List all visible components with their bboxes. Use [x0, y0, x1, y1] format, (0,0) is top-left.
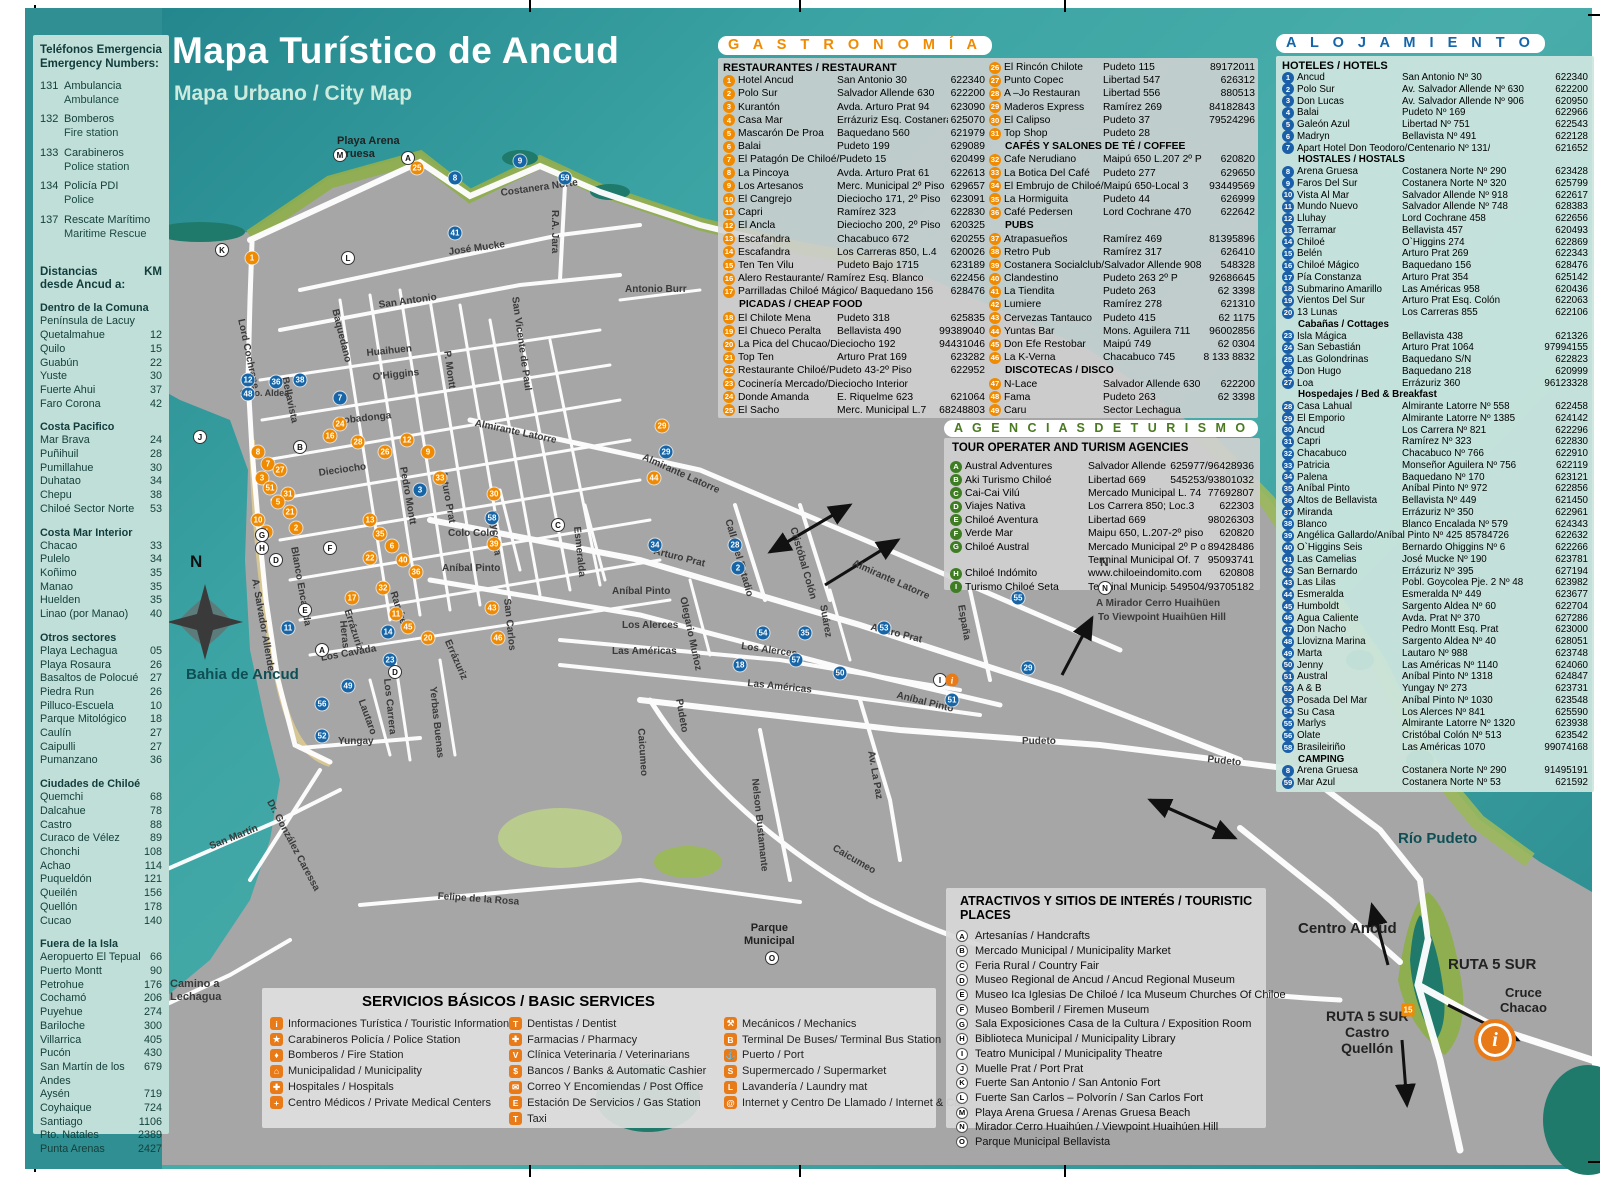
entry-name: San Sebastián	[1297, 342, 1399, 353]
attraction-label: Fuerte San Antonio / San Antonio Fort	[975, 1077, 1160, 1089]
distance-place: Koñimo	[40, 567, 77, 581]
marker-badge: 31	[989, 128, 1001, 140]
entry-address: Almirante Latorre Nº 1320	[1402, 718, 1552, 729]
marker-badge: 51	[1282, 671, 1294, 683]
directory-row: 42LumiereRamírez 278621310	[989, 298, 1255, 311]
distance-place: Pto. Natales	[40, 1129, 99, 1143]
distance-km: 12	[146, 329, 162, 343]
distance-place: Pulelo	[40, 553, 70, 567]
entry-phone: 628383	[1555, 201, 1588, 212]
distance-place: Castro	[40, 819, 72, 833]
distance-place: Villarrica	[40, 1034, 81, 1048]
distance-km: 36	[146, 754, 162, 768]
marker-badge: 24	[1282, 342, 1294, 354]
marker-badge: 23	[1282, 330, 1294, 342]
emergency-number: 134	[40, 180, 64, 208]
attraction-row: KFuerte San Antonio / San Antonio Fort	[956, 1076, 1266, 1091]
directory-row: 11CapriRamírez 323622830	[723, 206, 985, 219]
distance-group: Dentro de la ComunaPenínsula de LacuyQue…	[40, 301, 162, 411]
entry-name: El Cangrejo	[738, 194, 834, 205]
directory-row: 46La K-VernaChacabuco 7458 133 8832	[989, 351, 1255, 364]
marker-badge: 20	[723, 339, 735, 351]
entry-address: Pudeto Bajo 1715	[837, 260, 948, 271]
entry-address: Sector Lechagua	[1103, 405, 1252, 416]
distance-km: 22	[146, 357, 162, 371]
marker-badge: 27	[989, 75, 1001, 87]
entry-address: Pudeto 263	[1103, 286, 1215, 297]
directory-row: 14ChiloéO`Higgins 274622869	[1282, 236, 1588, 248]
entry-name: Vientos Del Sur	[1297, 295, 1399, 306]
entry-name: Clandestino	[1004, 273, 1100, 284]
distance-km: 33	[146, 540, 162, 554]
entry-address: Pudeto 44	[1103, 194, 1218, 205]
entry-phone: 627286	[1555, 613, 1588, 624]
marker-badge: A	[950, 461, 962, 473]
map-label: RUTA 5 SUR Castro Quellón	[1326, 1008, 1408, 1056]
map-marker-wh: N	[1098, 581, 1112, 595]
distance-row: Pulelo34	[40, 553, 162, 567]
map-marker-bl: 34	[649, 539, 662, 552]
entry-name: Humboldt	[1297, 601, 1399, 612]
entry-address: Costanera Norte Nº 290	[1402, 166, 1552, 177]
page-subtitle: Mapa Urbano / City Map	[174, 82, 412, 106]
map-marker-or: 24	[334, 418, 347, 431]
service-label: Municipalidad / Municipality	[288, 1065, 422, 1077]
map-marker-bl: 3	[414, 484, 427, 497]
entry-address: Bernardo Ohiggins Nº 6	[1402, 542, 1552, 553]
map-marker-bl: 36	[270, 376, 283, 389]
directory-row: BAki Turismo ChiloéLibertad 669545253/93…	[950, 473, 1254, 486]
map-marker-wh: A	[401, 151, 415, 165]
entry-name: Agua Caliente	[1297, 613, 1399, 624]
directory-row: 56OlateCristóbal Colón Nº 513623542	[1282, 730, 1588, 742]
distance-place: Puyehue	[40, 1006, 83, 1020]
distance-km: 68	[146, 791, 162, 805]
port-icon: ⚓	[724, 1049, 737, 1062]
attraction-letter-badge: F	[956, 1004, 968, 1016]
entry-address: Avda. Prat Nº 370	[1402, 613, 1552, 624]
distance-km: 10	[146, 700, 162, 714]
emergency-label: AmbulanciaAmbulance	[64, 80, 162, 108]
emergency-row: 134Policía PDIPolice	[40, 180, 162, 208]
distance-km: 178	[140, 901, 162, 915]
distance-row: Playa Rosaura26	[40, 659, 162, 673]
entry-phone: 621326	[1555, 331, 1588, 342]
map-marker-or: 30	[488, 488, 501, 501]
service-row: +Centro Médicos / Private Medical Center…	[270, 1095, 509, 1111]
entry-name: Aníbal Pinto	[1297, 483, 1399, 494]
marker-badge: 50	[1282, 659, 1294, 671]
entry-name: Los Artesanos	[738, 181, 834, 192]
emergency-number: 137	[40, 214, 64, 242]
entry-address: Los Alerces Nº 841	[1402, 707, 1552, 718]
entry-address: Errázuriz Esq. Costanera	[837, 115, 948, 126]
mechanic-icon: ⚒	[724, 1017, 737, 1030]
entry-phone: 622458	[1555, 401, 1588, 412]
distance-row: Chacao33	[40, 540, 162, 554]
entry-name: Top Shop	[1004, 128, 1100, 139]
entry-phone: 62 3398	[1218, 286, 1255, 297]
directory-row: 36Café PedersenLord Cochrane 470622642	[989, 206, 1255, 219]
directory-row: 2Polo SurAv. Salvador Allende Nº 6306222…	[1282, 84, 1588, 96]
entry-address: Bellavista 457	[1402, 225, 1552, 236]
attraction-letter-badge: M	[956, 1107, 968, 1119]
marker-badge: 58	[1282, 741, 1294, 753]
service-label: Farmacias / Pharmacy	[527, 1034, 637, 1046]
distance-row: Puyehue274	[40, 1006, 162, 1020]
map-marker-or: 45	[402, 621, 415, 634]
directory-row: 54Su CasaLos Alerces Nº 841625590	[1282, 706, 1588, 718]
distance-row: Península de Lacuy	[40, 315, 162, 329]
distance-place: Mar Brava	[40, 434, 90, 448]
entry-phone: 77692807	[1208, 488, 1254, 499]
emergency-label: Policía PDIPolice	[64, 180, 162, 208]
entry-phone: 623548	[1555, 695, 1588, 706]
directory-row: 20La Pica del Chucao/Dieciocho 192944310…	[723, 338, 985, 351]
entry-address: Costanera Norte Nº 53	[1402, 777, 1552, 788]
entry-phone: 625070	[951, 115, 985, 126]
map-marker-bl: 54	[757, 627, 770, 640]
map-label: RUTA 5 SUR	[1448, 956, 1536, 973]
entry-address: O`Higgins 274	[1402, 237, 1552, 248]
distance-row: Mar Brava24	[40, 434, 162, 448]
marker-badge: 20	[1282, 307, 1294, 319]
entry-name: Belén	[1297, 248, 1399, 259]
entry-address: Las Américas 1070	[1402, 742, 1541, 753]
emergency-title-en: Emergency Numbers:	[40, 57, 162, 71]
entry-name: Escafandra	[738, 234, 834, 245]
entry-phone: 99389040	[939, 326, 985, 337]
distance-row: Castro88	[40, 819, 162, 833]
entry-address: Pudeto Nº 169	[1402, 107, 1552, 118]
entry-name: O`Higgins Seis	[1297, 542, 1399, 553]
map-label: Las Américas	[612, 646, 677, 658]
marker-badge: 12	[723, 220, 735, 232]
map-marker-or: 35	[374, 528, 387, 541]
distance-place: Pumillahue	[40, 462, 93, 476]
emergency-numbers-panel: Teléfonos Emergencia Emergency Numbers: …	[33, 35, 169, 261]
map-marker-or: 51	[264, 482, 277, 495]
map-label: Los Alerces	[622, 620, 678, 632]
entry-address: Bellavista 438	[1402, 331, 1552, 342]
attraction-label: Fuerte San Carlos – Polvorín / San Carlo…	[975, 1092, 1203, 1104]
distance-km: 35	[146, 581, 162, 595]
distance-group-name: Ciudades de Chiloé	[40, 777, 162, 791]
directory-row: 41La TienditaPudeto 26362 3398	[989, 285, 1255, 298]
marker-badge: 10	[1282, 189, 1294, 201]
map-marker-bl: 56	[316, 698, 329, 711]
distance-row: Duhatao34	[40, 475, 162, 489]
distance-row: Manao35	[40, 581, 162, 595]
entry-address: Arturo Prat 269	[1402, 248, 1552, 259]
distance-km: 35	[146, 594, 162, 608]
entry-address: Salvador Allende 904	[1088, 461, 1167, 472]
map-marker-or: 21	[284, 506, 297, 519]
directory-row: 9Faros Del SurCostanera Norte Nº 3206257…	[1282, 178, 1588, 190]
directory-row: 22Restaurante Chiloé/Pudeto 43-2º Piso62…	[723, 364, 985, 377]
entry-name: Marlys	[1297, 718, 1399, 729]
directory-row: 47Don NachoPedro Montt Esq. Prat623000	[1282, 624, 1588, 636]
entry-name: A & B	[1297, 683, 1399, 694]
entry-phone: 623731	[1555, 683, 1588, 694]
pharmacy-icon: ✚	[509, 1033, 522, 1046]
entry-name: Caru	[1004, 405, 1100, 416]
marker-badge: 3	[723, 101, 735, 113]
directory-section: CAFÉS Y SALONES DE TÉ / COFFEE	[989, 140, 1255, 153]
marker-badge: 8	[1282, 765, 1294, 777]
map-marker-or: 1	[246, 252, 259, 265]
entry-phone: 68248803	[939, 405, 985, 416]
map-marker-bl: 28	[729, 539, 742, 552]
directory-row: 5Mascarón De ProaBaquedano 560621979	[723, 127, 985, 140]
entry-address: Bellavista Nº 491	[1402, 131, 1552, 142]
distance-row: Parque Mitológico18	[40, 713, 162, 727]
map-marker-or: 2	[290, 522, 303, 535]
entry-address: Pudeto 37	[1103, 115, 1206, 126]
directory-row: 6MadrynBellavista Nº 491622128	[1282, 131, 1588, 143]
entry-address: Errázuriz Nº 350	[1402, 507, 1552, 518]
entry-name: Austral	[1297, 671, 1399, 682]
entry-phone: 622340	[1555, 72, 1588, 83]
marker-badge: 28	[1282, 401, 1294, 413]
service-label: Puerto / Port	[742, 1049, 804, 1061]
marker-badge: 41	[989, 286, 1001, 298]
attraction-label: Parque Municipal Bellavista	[975, 1136, 1110, 1148]
directory-row: 58BrasileiriñoLas Américas 107099074168	[1282, 742, 1588, 754]
entry-phone: 622632	[1555, 530, 1588, 541]
entry-name: Capri	[1297, 436, 1399, 447]
entry-phone: 622642	[1221, 207, 1255, 218]
entry-address: Maipú 749	[1103, 339, 1215, 350]
entry-name: Chiloé Mágico	[1297, 260, 1399, 271]
map-label: Río Pudeto	[1398, 830, 1477, 847]
entry-name: Olate	[1297, 730, 1399, 741]
attraction-label: Museo Ica Iglesias De Chiloé / Ica Museu…	[975, 989, 1286, 1001]
distance-km: 38	[146, 489, 162, 503]
entry-name: La Botica Del Café	[1004, 168, 1100, 179]
entry-name: Atrapasueños	[1004, 234, 1100, 245]
entry-address: Libertad 669	[1088, 515, 1205, 526]
entry-name: Parrilladas Chiloé Mágico/ Baquedano 156	[738, 286, 933, 297]
distance-row: Pucón430	[40, 1047, 162, 1061]
directory-row: 29El EmporioAlmirante Latorre Nº 1385624…	[1282, 413, 1588, 425]
entry-phone: 623982	[1555, 577, 1588, 588]
directory-section: Cabañas / Cottages	[1282, 319, 1588, 331]
entry-phone: 622830	[1555, 436, 1588, 447]
entry-name: Chiloé	[1297, 237, 1399, 248]
distance-km: 78	[146, 805, 162, 819]
service-row: ⚒Mecánicos / Mechanics	[724, 1016, 930, 1032]
directory-row: 39Costanera Socialclub/Salvador Allende …	[989, 259, 1255, 272]
service-row: $Bancos / Banks & Automatic Cashier	[509, 1063, 724, 1079]
entry-address: Baquedano Nº 170	[1402, 472, 1552, 483]
directory-row: 36Altos de BellavistaBellavista Nº 44962…	[1282, 495, 1588, 507]
marker-badge: 17	[1282, 271, 1294, 283]
distance-place: Aeropuerto El Tepual	[40, 951, 141, 965]
laundry-icon: L	[724, 1081, 737, 1094]
distance-km: 34	[146, 553, 162, 567]
entry-phone: 622617	[1555, 190, 1588, 201]
entry-phone: 621652	[1555, 143, 1588, 154]
directory-row: 26El Rincón ChilotePudeto 11589172011	[989, 61, 1255, 74]
entry-address: Libertad 547	[1103, 75, 1218, 86]
entry-name: Jenny	[1297, 660, 1399, 671]
distance-row: Aeropuerto El Tepual66	[40, 951, 162, 965]
marker-badge: 6	[1282, 130, 1294, 142]
directory-row: 5Galeón AzulLibertad Nº 751622543	[1282, 119, 1588, 131]
entry-address: Monseñor Aguilera Nº 756	[1402, 460, 1553, 471]
attraction-label: Museo Bomberil / Firemen Museum	[975, 1004, 1149, 1016]
entry-phone: 545253/93801032	[1170, 475, 1254, 486]
entry-name: La Pica del Chucao/Dieciocho 192	[738, 339, 895, 350]
entry-phone: 622456	[951, 273, 985, 284]
distance-row: Coyhaique724	[40, 1102, 162, 1116]
distance-place: Achao	[40, 860, 71, 874]
service-label: Bancos / Banks & Automatic Cashier	[527, 1065, 706, 1077]
emergency-number: 132	[40, 113, 64, 141]
distance-row: Pilluco-Escuela10	[40, 700, 162, 714]
entry-name: El Chilote Mena	[738, 313, 834, 324]
service-row: TDentistas / Dentist	[509, 1016, 724, 1032]
map-label: Cruce Chacao	[1500, 986, 1547, 1016]
distance-place: Península de Lacuy	[40, 315, 135, 329]
entry-phone: 79524296	[1209, 115, 1255, 126]
map-marker-or: 11	[390, 608, 403, 621]
marker-badge: 18	[723, 312, 735, 324]
entry-phone: 622704	[1555, 601, 1588, 612]
marker-badge: 33	[1282, 459, 1294, 471]
distance-row: Quetalmahue12	[40, 329, 162, 343]
distance-place: San Martín de los Andes	[40, 1061, 140, 1088]
directory-row: 8Arena GruesaCostanera Norte Nº 29091495…	[1282, 765, 1588, 777]
entry-name: Balai	[1297, 107, 1399, 118]
marker-badge: 36	[989, 207, 1001, 219]
map-marker-or: 26	[379, 446, 392, 459]
entry-phone: 620950	[1555, 96, 1588, 107]
entry-phone: 549504/93705182	[1170, 582, 1254, 593]
distance-place: Faro Corona	[40, 398, 101, 412]
marker-badge: 3	[1282, 95, 1294, 107]
directory-section: CAMPING	[1282, 753, 1588, 765]
map-marker-infolg: i	[1474, 1019, 1516, 1061]
directory-row: 17Parrilladas Chiloé Mágico/ Baquedano 1…	[723, 285, 985, 298]
marker-badge: 33	[989, 167, 1001, 179]
map-marker-or: 10	[252, 514, 265, 527]
entry-address: Salvador Allende Nº 748	[1402, 201, 1552, 212]
entry-name: Don Lucas	[1297, 96, 1399, 107]
directory-row: 34El Embrujo de Chiloé/Maipú 650-Local 3…	[989, 180, 1255, 193]
directory-row: 18Submarino AmarilloLas Américas 9586204…	[1282, 283, 1588, 295]
marker-badge: 32	[1282, 448, 1294, 460]
service-row: ✚Hospitales / Hospitals	[270, 1079, 509, 1095]
directory-row: 45Don Efe RestobarMaipú 74962 0304	[989, 338, 1255, 351]
entry-address: Ramírez 269	[1103, 102, 1206, 113]
marker-badge: 30	[989, 114, 1001, 126]
service-row: ♦Bomberos / Fire Station	[270, 1048, 509, 1064]
info-icon: i	[270, 1017, 283, 1030]
distance-km: 2389	[134, 1129, 162, 1143]
attraction-row: MPlaya Arena Gruesa / Arenas Gruesa Beac…	[956, 1105, 1266, 1120]
entry-address: San Antonio 30	[837, 75, 948, 86]
entry-name: Restaurante Chiloé/Pudeto 43-2º Piso	[738, 365, 912, 376]
entry-name: Mascarón De Proa	[738, 128, 834, 139]
directory-section: HOTELES / HOTELS	[1282, 60, 1588, 72]
entry-name: Mundo Nuevo	[1297, 201, 1399, 212]
entry-address: Ramírez Nº 323	[1402, 436, 1552, 447]
entry-name: El Ancla	[738, 220, 834, 231]
entry-name: Don Hugo	[1297, 366, 1399, 377]
entry-address: Blanco Encalada Nº 579	[1402, 519, 1552, 530]
marker-badge: 21	[723, 352, 735, 364]
distance-place: Linao (por Manao)	[40, 608, 128, 622]
distance-place: Puqueldón	[40, 873, 92, 887]
entry-phone: 99074168	[1544, 742, 1588, 753]
entry-name: Polo Sur	[738, 88, 834, 99]
map-marker-bl: 18	[734, 659, 747, 672]
entry-phone: 623781	[1555, 554, 1588, 565]
distance-place: Quemchi	[40, 791, 83, 805]
attraction-label: Mercado Municipal / Municipality Market	[975, 945, 1171, 957]
directory-row: 44EsmeraldaEsmeralda Nº 449623677	[1282, 589, 1588, 601]
distance-row: Basaltos de Polocué27	[40, 672, 162, 686]
marker-badge: 43	[989, 312, 1001, 324]
service-row: ✉Correo Y Encomiendas / Post Office	[509, 1079, 724, 1095]
directory-row: 16Alero Restaurante/ Ramírez Esq. Blanco…	[723, 272, 985, 285]
directory-section: RESTAURANTES / RESTAURANT	[723, 61, 985, 74]
map-marker-wh: H	[255, 541, 269, 555]
distance-place: Pilluco-Escuela	[40, 700, 114, 714]
entry-address: Arturo Prat 354	[1402, 272, 1552, 283]
distance-group-name: Dentro de la Comuna	[40, 301, 162, 315]
entry-name: Turismo Chiloé Seta	[965, 582, 1085, 593]
distance-km: 405	[140, 1034, 162, 1048]
map-label: Bahia de Ancud	[186, 666, 299, 683]
map-marker-bl: 53	[878, 622, 891, 635]
entry-phone: 622823	[1555, 354, 1588, 365]
map-marker-or: 20	[422, 632, 435, 645]
marker-badge: 30	[1282, 424, 1294, 436]
entry-address: Cristóbal Colón Nº 513	[1402, 730, 1552, 741]
directory-section: PUBS	[989, 219, 1255, 232]
entry-phone: 622613	[951, 168, 985, 179]
directory-row: 18El Chilote MenaPudeto 318625835	[723, 312, 985, 325]
directory-row: 14EscafandraLos Carreras 850, L.4620026	[723, 246, 985, 259]
entry-address: Arturo Prat Esq. Colón	[1402, 295, 1552, 306]
marker-badge: 8	[723, 167, 735, 179]
distance-row: Pumanzano36	[40, 754, 162, 768]
entry-address: Salvador Allende Nº 918	[1402, 190, 1552, 201]
entry-address: Avda. Arturo Prat 94	[837, 102, 948, 113]
entry-phone: 626999	[1221, 194, 1255, 205]
marker-badge: 10	[723, 193, 735, 205]
distance-km: 27	[146, 741, 162, 755]
entry-address: Baquedano 156	[1402, 260, 1552, 271]
entry-phone: 622266	[1555, 542, 1588, 553]
attraction-letter-badge: I	[956, 1048, 968, 1060]
distance-place: Guabún	[40, 357, 78, 371]
entry-name: N-Lace	[1004, 379, 1100, 390]
entry-address: Almirante Latorre Nº 558	[1402, 401, 1552, 412]
gastronomia-header: G A S T R O N O M Í A	[718, 36, 992, 55]
directory-row: 9Los ArtesanosMerc. Municipal 2º Piso629…	[723, 180, 985, 193]
entry-name: Chacabuco	[1297, 448, 1399, 459]
entry-name: Cervezas Tantauco	[1004, 313, 1100, 324]
service-label: Supermercado / Supermarket	[742, 1065, 886, 1077]
entry-phone: 626312	[1221, 75, 1255, 86]
map-marker-wh: D	[388, 665, 402, 679]
directory-row: 37AtrapasueñosRamírez 46981395896	[989, 232, 1255, 245]
entry-phone: 620255	[951, 234, 985, 245]
